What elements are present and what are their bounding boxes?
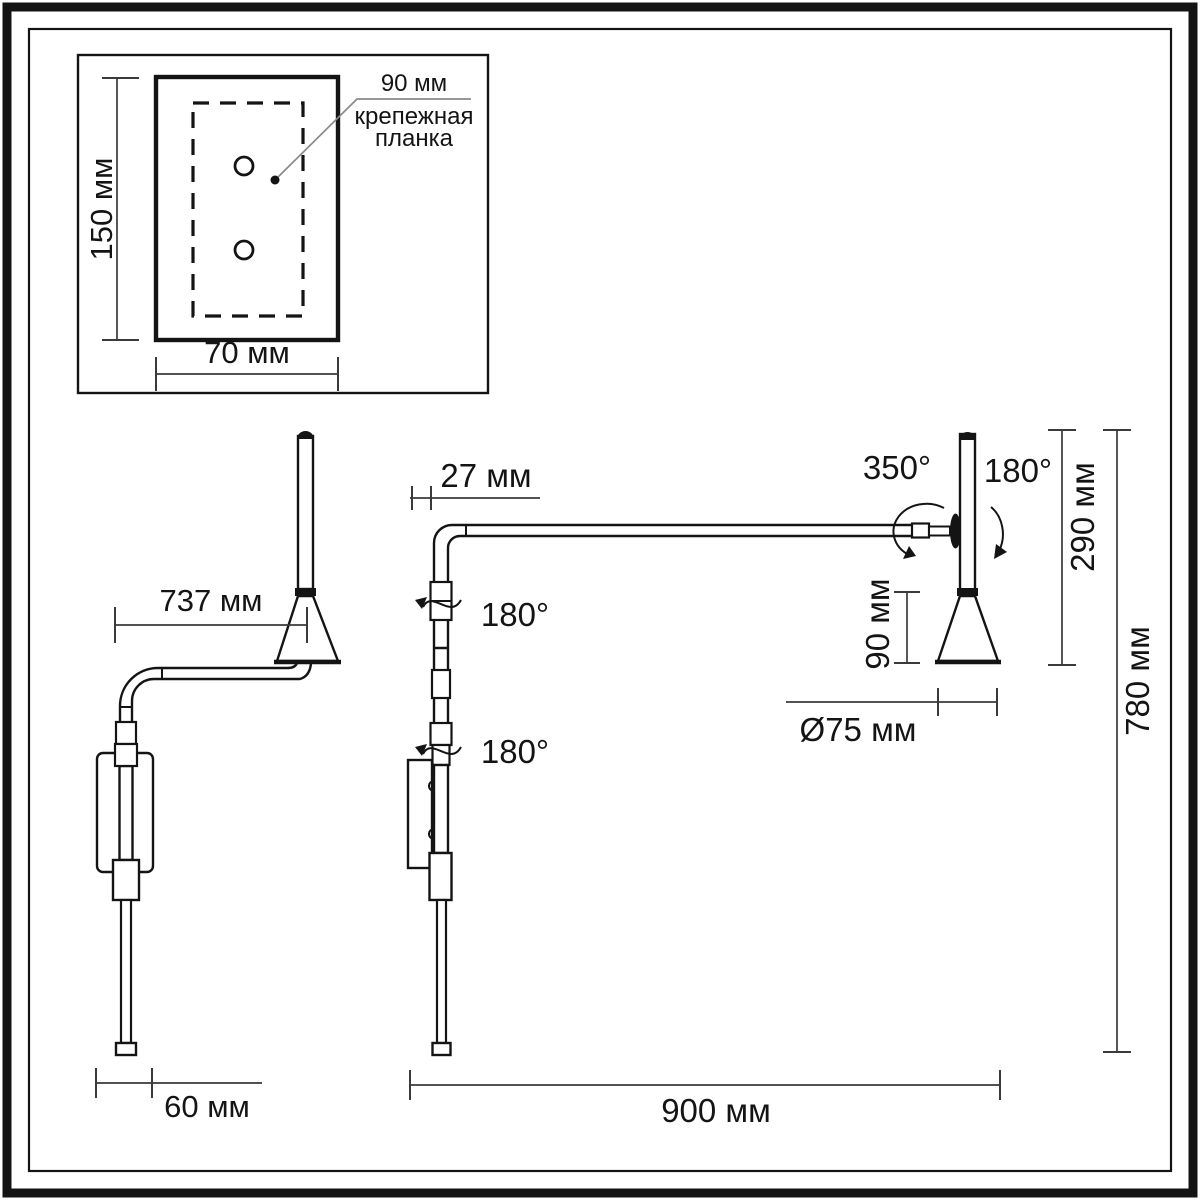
- wall-offset-label: 27 мм: [440, 457, 531, 494]
- dim-shade-diameter: Ø75 мм: [786, 688, 997, 748]
- shade-height-label: 90 мм: [859, 578, 896, 669]
- rod-end-cap-front: [433, 1043, 451, 1055]
- arm-end-coupler: [912, 524, 929, 538]
- bracket-label-line2: планка: [375, 125, 454, 152]
- lower-coupler-front: [430, 853, 452, 900]
- front-view: 180° 180° 350° 180° 27 мм 290 мм 90 мм Ø…: [408, 430, 1156, 1129]
- dim-total-drop: 780 мм: [1103, 430, 1156, 1052]
- mounting-plate-inset: 90 мм крепежная планка 150 мм 70 мм: [78, 55, 488, 393]
- arm-joint-lines: [120, 668, 162, 707]
- dim-head-height: 290 мм: [1048, 430, 1101, 665]
- shade-cone-front: [938, 596, 998, 661]
- arm-reach-label: 737 мм: [160, 583, 263, 618]
- dim-shade-height: 90 мм: [859, 578, 920, 669]
- head-rotation-label: 350°: [863, 449, 931, 486]
- leader-dot: [271, 176, 280, 185]
- lower-coupler: [113, 860, 139, 900]
- screw-hole-bottom: [235, 241, 253, 259]
- dim-arm-reach: 737 мм: [115, 583, 307, 643]
- stem-over-plate-front: [434, 765, 448, 853]
- base-width-label: 60 мм: [164, 1089, 250, 1124]
- swivel-block-b: [115, 744, 137, 766]
- swivel-block-a: [116, 722, 136, 744]
- technical-drawing: 90 мм крепежная планка 150 мм 70 мм: [0, 0, 1200, 1200]
- head-stem-cap: [297, 431, 314, 439]
- head-stem-front: [960, 434, 975, 590]
- head-stem: [298, 436, 313, 589]
- stem-over-plate: [120, 766, 133, 860]
- total-drop-label: 780 мм: [1119, 626, 1156, 736]
- arm-outer-edge: [120, 663, 297, 722]
- plate-width-label: 70 мм: [204, 335, 290, 370]
- lower-swivel-label: 180°: [481, 733, 549, 770]
- screw-hole-top: [235, 157, 253, 175]
- arm-end-pin: [929, 527, 950, 536]
- wall-plate-front: [408, 760, 432, 868]
- plate-height-label: 150 мм: [84, 158, 119, 261]
- lower-rod-front: [437, 900, 446, 1043]
- lower-rod: [121, 900, 131, 1043]
- arm-span-label: 900 мм: [661, 1092, 771, 1129]
- inset-offset-label: 90 мм: [381, 70, 447, 97]
- backplate-outline: [156, 77, 338, 340]
- head-tilt-arrow: [991, 507, 1003, 551]
- shade-diameter-label: Ø75 мм: [800, 711, 917, 748]
- arm-inner-edge: [132, 663, 311, 722]
- stem-sleeve: [432, 670, 450, 698]
- arm-bottom-edge: [448, 536, 912, 551]
- lamp-dimension-sheet: 90 мм крепежная планка 150 мм 70 мм: [0, 0, 1200, 1200]
- head-height-label: 290 мм: [1064, 462, 1101, 572]
- lower-swivel-block: [431, 723, 452, 745]
- dim-wall-offset: 27 мм: [410, 457, 540, 510]
- dim-base-width: 60 мм: [96, 1068, 262, 1124]
- upper-swivel-label: 180°: [481, 596, 549, 633]
- dim-arm-span: 900 мм: [410, 1070, 1000, 1129]
- head-tilt-label: 180°: [984, 452, 1052, 489]
- rod-end-cap: [116, 1043, 136, 1055]
- side-view: 737 мм 60 мм: [96, 431, 341, 1124]
